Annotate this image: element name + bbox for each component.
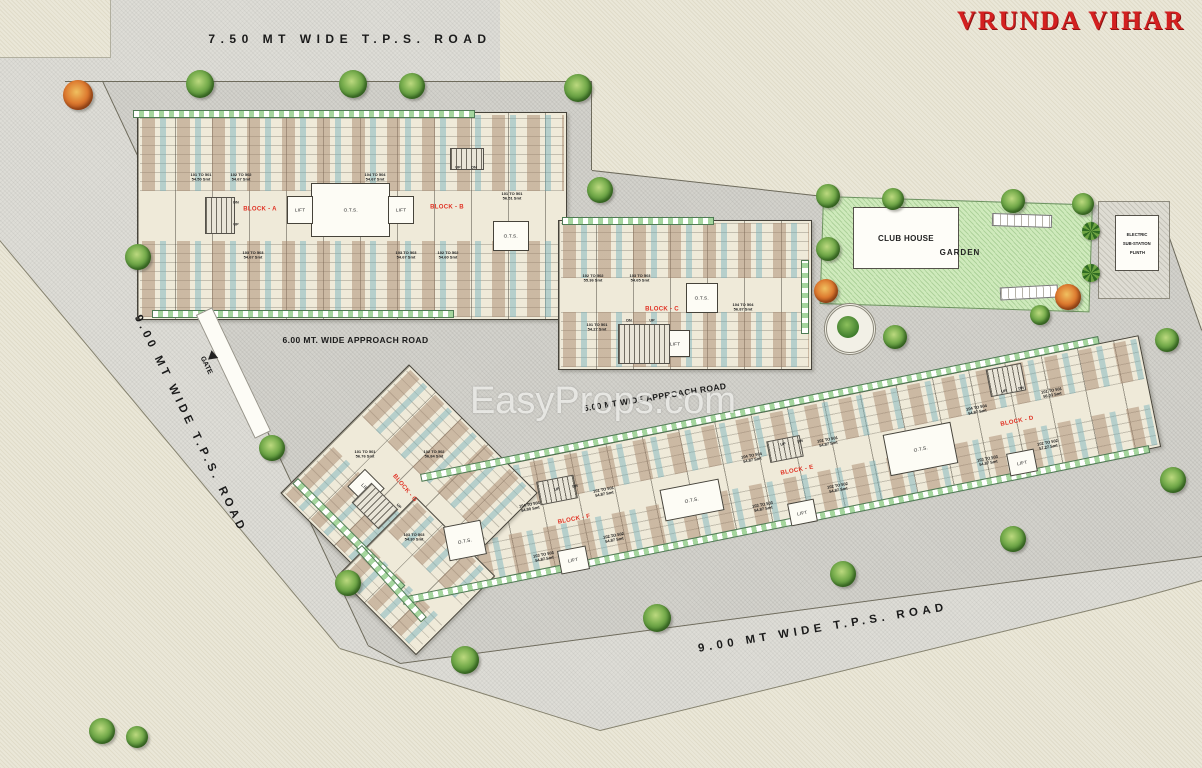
boundary-line — [591, 81, 592, 170]
ots-label: O.T.S. — [343, 207, 357, 212]
ots-court: O.T.S. — [311, 183, 390, 237]
unit-area: 56.51 Smt — [493, 196, 531, 200]
ots-label: O.T.S. — [913, 445, 928, 453]
tree-icon — [1030, 305, 1050, 325]
block-name-label: BLOCK - A — [230, 206, 291, 213]
tree-icon — [830, 561, 856, 587]
tree-icon — [1001, 189, 1025, 213]
tree-icon — [816, 237, 840, 261]
unit-label: 102 TO 50255.36 Smt — [574, 274, 612, 283]
unit-area: 54.27 Smt — [578, 327, 616, 331]
tree-icon — [1055, 284, 1081, 310]
tree-icon — [451, 646, 479, 674]
site-plan-canvas: CLUB HOUSE GARDEN ELECTRIC SUB-STATION P… — [0, 0, 1202, 768]
unit-label: 104 TO 50456.87 Smt — [724, 303, 762, 312]
unit-label: 103 TO 50354.67 Smt — [234, 251, 272, 260]
substation-label-line: ELECTRIC — [1127, 232, 1148, 237]
tree-icon — [1072, 193, 1094, 215]
tree-icon — [1155, 328, 1179, 352]
lift-label: LIFT — [295, 207, 305, 212]
tree-icon — [63, 80, 93, 110]
ots-label: O.T.S. — [685, 496, 700, 504]
palm-tree-icon — [1082, 264, 1100, 282]
unit-area: 54.67 Smt — [387, 255, 425, 259]
club-house: CLUB HOUSE — [853, 207, 959, 269]
tree-icon — [564, 74, 592, 102]
tree-icon — [335, 570, 361, 596]
tree-icon — [399, 73, 425, 99]
lift-label: LIFT — [670, 341, 680, 346]
tree-icon — [1000, 526, 1026, 552]
unit-area: 56.84 Smt — [415, 454, 453, 458]
unit-label: 101 TO 50156.51 Smt — [493, 192, 531, 201]
tree-icon — [339, 70, 367, 98]
ots-court: O.T.S. — [493, 221, 529, 251]
unit-area: 56.87 Smt — [724, 307, 762, 311]
unit-label: 101 TO 50154.50 Smt — [182, 173, 220, 182]
ots-label: O.T.S. — [504, 233, 518, 238]
ots-label: O.T.S. — [695, 295, 709, 300]
lift-label: LIFT — [797, 509, 808, 516]
balcony-strip — [133, 110, 475, 118]
unit-area: 54.50 Smt — [182, 177, 220, 181]
substation-label-line: SUB-STATION — [1123, 241, 1151, 246]
tree-icon — [259, 435, 285, 461]
approach-road-label: 6.00 MT. WIDE APPROACH ROAD — [268, 335, 443, 345]
club-house-label: CLUB HOUSE — [878, 234, 934, 243]
tree-icon — [186, 70, 214, 98]
unit-area: 54.30 Smt — [395, 537, 433, 541]
garden-label: GARDEN — [905, 248, 1015, 257]
lift-label: LIFT — [1016, 459, 1027, 466]
unit-area: 54.67 Smt — [222, 177, 260, 181]
tree-icon — [643, 604, 671, 632]
bush-icon — [837, 316, 859, 338]
stair-direction-label: DN — [467, 165, 482, 170]
tree-icon — [587, 177, 613, 203]
stair-direction-label: UP — [229, 222, 244, 227]
boundary-line — [65, 81, 592, 82]
tree-icon — [89, 718, 115, 744]
staircase — [618, 324, 670, 364]
unit-area: 54.60 Smt — [429, 255, 467, 259]
tree-icon — [883, 325, 907, 349]
stair-direction-label: DN — [622, 318, 637, 323]
palm-tree-icon — [1082, 222, 1100, 240]
stair-direction-label: DN — [229, 200, 244, 205]
tree-icon — [816, 184, 840, 208]
ots-court: O.T.S. — [443, 520, 487, 562]
tree-icon — [126, 726, 148, 748]
unit-label: 103 TO 50354.67 Smt — [387, 251, 425, 260]
unit-area: 55.36 Smt — [574, 278, 612, 282]
project-title: VRUNDA VIHAR — [945, 6, 1197, 36]
balcony-strip — [562, 217, 714, 225]
balcony-strip — [801, 260, 809, 334]
tree-icon — [814, 279, 838, 303]
unit-label: 102 TO 50256.84 Smt — [415, 450, 453, 459]
unit-label: 102 TO 50254.67 Smt — [222, 173, 260, 182]
lift-box: LIFT — [388, 196, 414, 224]
tree-icon — [882, 188, 904, 210]
unit-label: 103 TO 50354.65 Smt — [621, 274, 659, 283]
ots-label: O.T.S. — [458, 537, 473, 545]
unit-area: 54.67 Smt — [356, 177, 394, 181]
unit-area: 56.76 Smt — [346, 454, 384, 458]
garden-bench — [992, 213, 1052, 228]
unit-label: 102 TO 50254.60 Smt — [429, 251, 467, 260]
stair-direction-label: UP — [451, 165, 466, 170]
electric-substation: ELECTRIC SUB-STATION PLINTH — [1115, 215, 1159, 271]
tree-icon — [1160, 467, 1186, 493]
road-label-top: 7.50 MT WIDE T.P.S. ROAD — [190, 32, 510, 46]
parcel-northwest-corner — [0, 0, 111, 58]
lift-box: LIFT — [287, 196, 313, 224]
lift-label: LIFT — [396, 207, 406, 212]
unit-label: 101 TO 50156.76 Smt — [346, 450, 384, 459]
unit-label: 103 TO 50354.30 Smt — [395, 533, 433, 542]
lift-label: LIFT — [568, 556, 579, 563]
unit-area: 54.65 Smt — [621, 278, 659, 282]
unit-label: 101 TO 50154.27 Smt — [578, 323, 616, 332]
unit-area: 54.67 Smt — [234, 255, 272, 259]
block-name-label: BLOCK - B — [417, 204, 478, 211]
watermark: EasyProps.com — [438, 380, 768, 423]
tree-icon — [125, 244, 151, 270]
substation-label-line: PLINTH — [1129, 250, 1144, 255]
stair-direction-label: UP — [645, 318, 660, 323]
unit-label: 104 TO 50454.67 Smt — [356, 173, 394, 182]
block-name-label: BLOCK - C — [632, 306, 693, 313]
